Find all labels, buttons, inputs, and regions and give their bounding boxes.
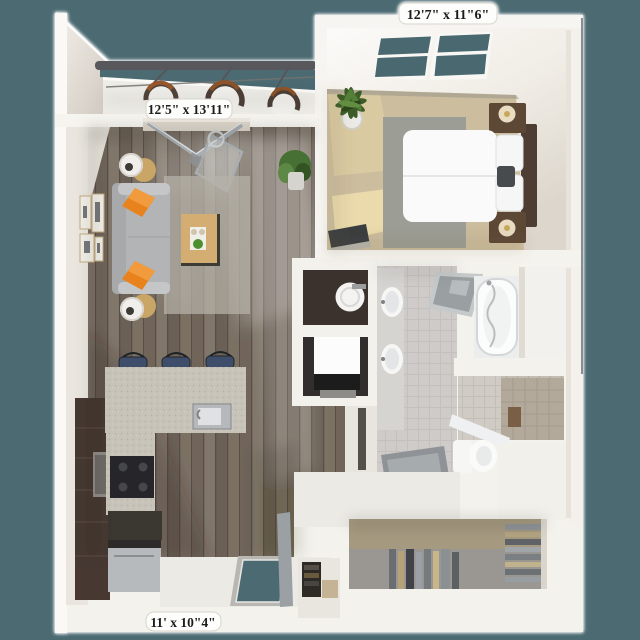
svg-text:11' x 10"4": 11' x 10"4" — [150, 615, 215, 630]
svg-text:12'7" x 11"6": 12'7" x 11"6" — [407, 8, 489, 23]
svg-text:12'5" x 13'11": 12'5" x 13'11" — [148, 102, 231, 117]
